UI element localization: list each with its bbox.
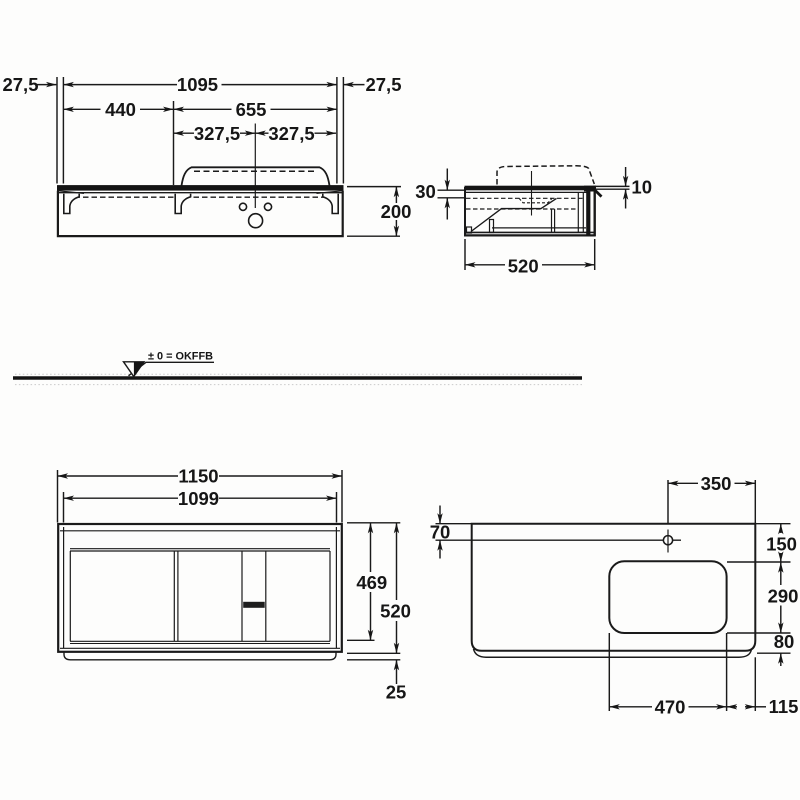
svg-text:27,5: 27,5 (2, 74, 38, 95)
svg-text:470: 470 (655, 696, 686, 717)
svg-text:327,5: 327,5 (268, 123, 314, 144)
svg-text:469: 469 (356, 572, 387, 593)
svg-text:80: 80 (774, 631, 795, 652)
svg-text:1150: 1150 (178, 466, 218, 487)
svg-text:200: 200 (381, 201, 412, 222)
svg-text:± 0 = OKFFB: ± 0 = OKFFB (148, 351, 213, 363)
svg-text:350: 350 (701, 473, 732, 494)
svg-text:520: 520 (508, 256, 539, 277)
svg-text:150: 150 (766, 534, 797, 555)
svg-text:30: 30 (415, 181, 436, 202)
svg-text:520: 520 (380, 601, 411, 622)
svg-text:1099: 1099 (178, 488, 219, 509)
svg-text:27,5: 27,5 (365, 74, 401, 95)
svg-text:25: 25 (386, 682, 407, 703)
svg-text:1095: 1095 (177, 74, 218, 95)
svg-text:327,5: 327,5 (194, 123, 240, 144)
svg-text:290: 290 (768, 586, 799, 607)
svg-text:10: 10 (631, 177, 652, 198)
svg-text:115: 115 (769, 696, 799, 717)
svg-text:655: 655 (236, 99, 267, 120)
svg-text:70: 70 (430, 522, 451, 543)
svg-text:440: 440 (105, 99, 136, 120)
